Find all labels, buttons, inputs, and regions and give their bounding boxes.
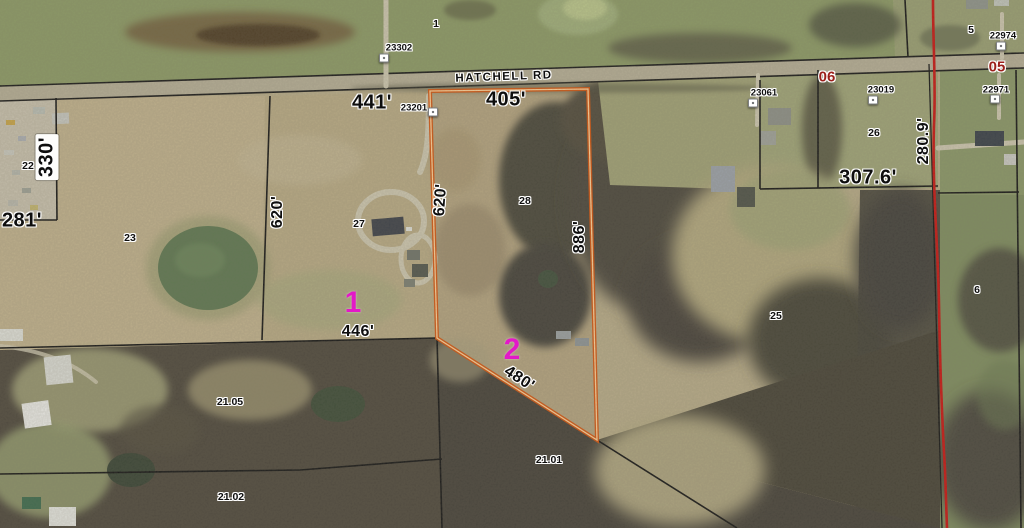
lot-label-1: 1	[433, 18, 439, 30]
highlight-label-1: 1	[345, 286, 362, 320]
measure-label-280.9: 280.9'	[915, 118, 933, 165]
measure-lg-label-330: 330'	[36, 134, 59, 180]
measure-label-620: 620'	[431, 183, 451, 217]
measure-label-446: 446'	[342, 323, 375, 341]
address-marker	[748, 99, 758, 108]
section-label-05: 05	[989, 59, 1006, 76]
lot-label-28: 28	[519, 195, 531, 207]
address-marker	[996, 42, 1006, 51]
parcel-id-label-23201: 23201	[401, 103, 427, 114]
lot-label-21.01: 21.01	[536, 454, 562, 466]
road-label-hatchellrd: HATCHELL RD	[455, 69, 553, 84]
lot-label-5: 5	[968, 24, 974, 36]
parcel-id-label-23061: 23061	[751, 88, 777, 99]
measure-lg-label-281: 281'	[2, 210, 42, 233]
lot-label-22: 22	[22, 160, 34, 172]
lot-label-26: 26	[868, 127, 880, 139]
measure-label-620: 620'	[269, 196, 287, 229]
measure-label-480: 480'	[500, 363, 537, 396]
measure-label-886: 886'	[571, 221, 589, 254]
lot-label-21.02: 21.02	[218, 491, 244, 503]
address-marker	[990, 95, 1000, 104]
address-marker	[428, 108, 438, 117]
lot-label-25: 25	[770, 310, 782, 322]
parcel-id-label-23302: 23302	[386, 43, 412, 54]
lot-label-23: 23	[124, 232, 136, 244]
lot-label-21.05: 21.05	[217, 396, 243, 408]
measure-lg-label-405: 405'	[486, 89, 526, 112]
aerial-parcel-map[interactable]: HATCHELL RD0605441'405'330'281'620'620'8…	[0, 0, 1024, 528]
lot-label-27: 27	[353, 218, 365, 230]
lot-label-6: 6	[974, 284, 980, 296]
measure-lg-label-441: 441'	[352, 92, 392, 115]
measure-lg-label-307.6: 307.6'	[839, 167, 897, 190]
section-label-06: 06	[819, 69, 836, 86]
map-label-layer: HATCHELL RD0605441'405'330'281'620'620'8…	[0, 0, 1024, 528]
parcel-id-label-22974: 22974	[990, 31, 1016, 42]
address-marker	[379, 54, 389, 63]
parcel-id-label-23019: 23019	[868, 85, 894, 96]
address-marker	[868, 96, 878, 105]
highlight-label-2: 2	[504, 333, 521, 367]
